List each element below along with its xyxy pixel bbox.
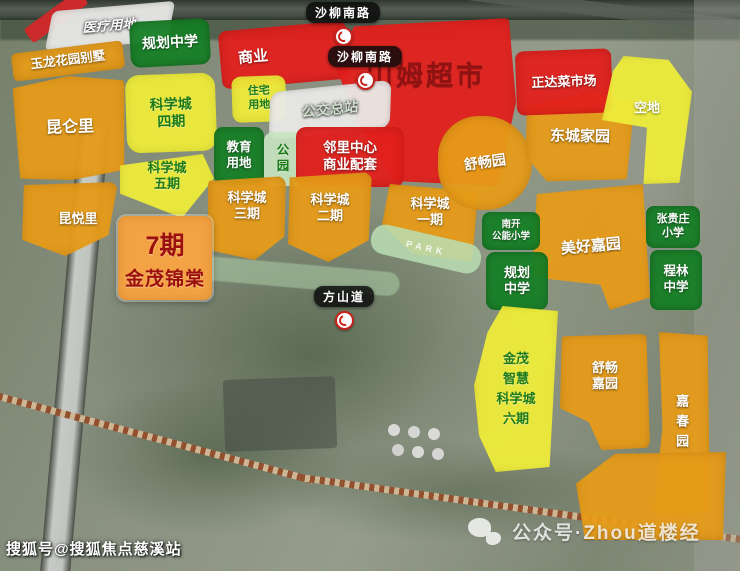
zone-label: 公交总站 [301,98,358,121]
zone-science-city-phase4: 科学城 四期 [125,72,218,153]
zone-name-label: 金茂锦棠 [125,264,205,291]
road-name-pill: 方山道 [314,286,374,307]
zone-meihao-jiayuan: 美好嘉园 [532,184,650,310]
road-label-shaliu-south-road-2: 沙柳南路 [328,46,402,90]
zone-yulong-garden-villa: 玉龙花园别墅 [11,40,126,81]
zone-label: 昆悦里 [58,211,97,227]
metro-station-icon [335,311,354,330]
zone-label: 美好嘉园 [560,235,621,259]
zone-label: 东城家园 [550,127,610,147]
zone-label: PARK [405,239,447,259]
zone-label: 公 园 [277,143,290,174]
zone-label: 舒畅 嘉园 [592,360,618,393]
zone-label: 程林 中学 [663,264,688,295]
zone-label: 嘉春园 [673,394,689,454]
watermark-text: 公众号·Zhou道楼经 [512,518,701,545]
zone-science-city-phase2: 科学城 二期 [288,172,372,262]
zone-jinmao-jintang-phase7: 7期 金茂锦棠 [118,216,212,300]
zone-education-land: 教育 用地 [214,127,264,185]
zone-label: 张贵庄 小学 [657,213,690,241]
road-name-pill: 沙柳南路 [306,2,380,23]
zone-label: 科学城 二期 [310,192,349,225]
zone-shuchang-jiayuan: 舒畅 嘉园 [560,334,650,450]
zone-label: 科学城 四期 [149,95,192,131]
zone-label: 规划中学 [142,33,199,53]
zone-label: 舒畅园 [463,151,507,174]
zone-label: 教育 用地 [226,140,251,171]
zone-label: 邻里中心 商业配套 [323,140,377,174]
zone-kunlunli: 昆仑里 [12,74,128,182]
road-name-pill: 沙柳南路 [328,46,402,67]
metro-station-icon [356,71,375,90]
zone-label: 正达菜市场 [531,73,597,92]
road-label-shaliu-south-road-1: 沙柳南路 [306,2,380,46]
watermark-wechat: 公众号·Zhou道楼经 [468,518,701,545]
zone-jinmao-smart-science-city-phase6: 金茂 智慧 科学城 六期 [474,306,558,472]
zone-label: 科学城 一期 [410,196,449,229]
zone-planned-middle-school-mid: 规划 中学 [486,252,548,310]
zone-label: 住宅 用地 [248,85,271,113]
zone-zhengda-market: 正达菜市场 [515,48,613,115]
zone-kunyueli: 昆悦里 [22,182,118,256]
watermark-sohu: 搜狐号@搜狐焦点慈溪站 [6,538,182,559]
zone-zhangguizhuang-primary: 张贵庄 小学 [646,206,700,248]
zone-label: 科学城 五期 [147,160,186,193]
zone-label: 南开 公能小学 [492,219,530,243]
zone-label: 商业 [237,47,269,68]
metro-station-icon [334,27,353,46]
storage-tanks [388,424,400,436]
zone-science-city-phase3: 科学城 三期 [208,176,286,260]
road-label-fangshan-road: 方山道 [314,286,374,330]
zone-chenglin-middle-school: 程林 中学 [650,250,702,310]
zone-planned-middle-school-nw: 规划中学 [129,18,211,68]
zone-label: 空地 [634,100,660,116]
zone-label: 金茂 智慧 科学城 六期 [496,349,535,430]
annotated-satellite-map: 医疗用地 规划中学 商业 山姆超市 玉龙花园别墅 昆仑里 昆悦里 科学城 四期 … [0,0,740,571]
zone-phase-label: 7期 [146,226,185,262]
factory-buildings [223,376,337,452]
zone-label: 昆仑里 [46,117,95,139]
zone-label: 科学城 三期 [227,190,266,223]
zone-label: 玉龙花园别墅 [30,49,106,74]
wechat-icon [468,518,504,545]
zone-science-city-phase5: 科学城 五期 [120,154,214,218]
zone-label: 规划 中学 [504,265,530,298]
zone-shuchang-garden: 舒畅园 [438,116,532,210]
zone-nankai-gongneng-primary: 南开 公能小学 [482,212,540,250]
